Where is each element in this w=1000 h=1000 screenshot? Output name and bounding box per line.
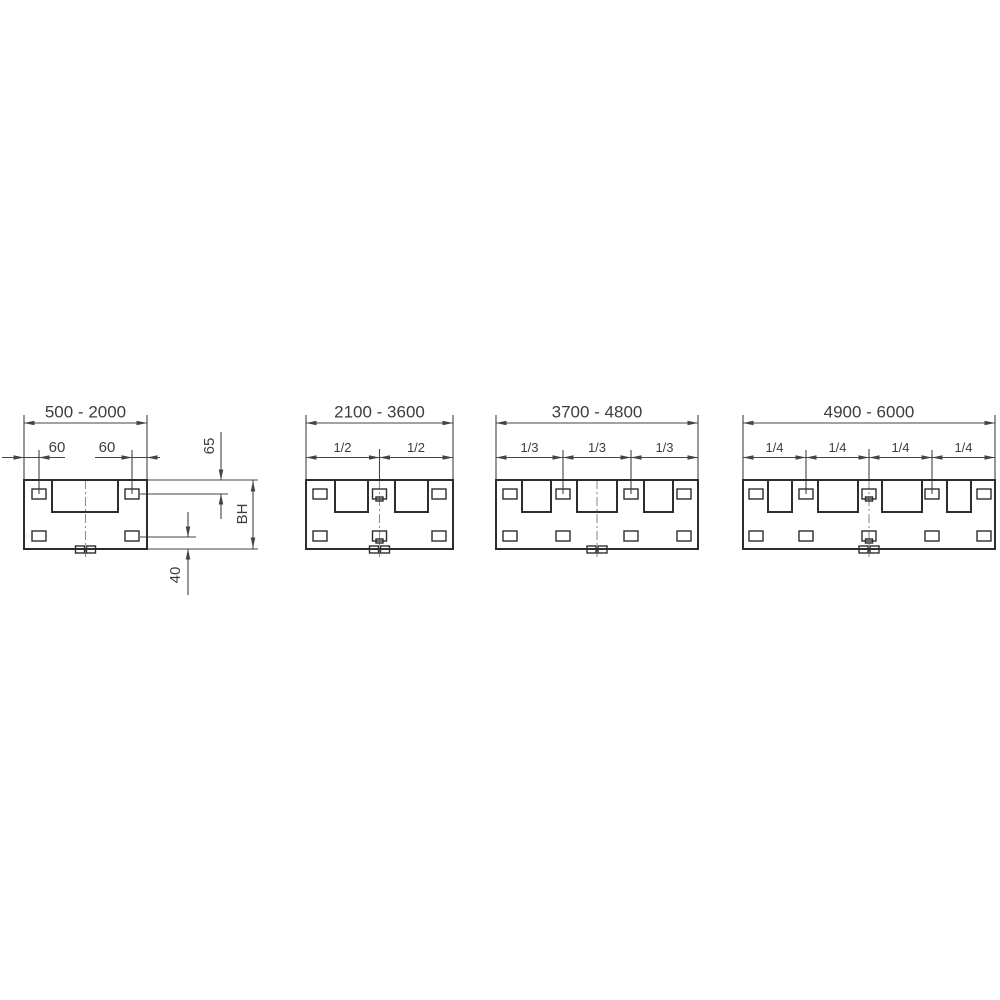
slot-bottom [556,531,570,541]
square-opening [947,480,971,512]
dimension-arrowhead [743,455,754,460]
dimension-arrowhead [859,455,870,460]
square-opening-center-left [818,480,858,512]
dim-label-bh: BH [234,504,251,525]
slot-top [432,489,446,499]
square-opening [335,480,368,512]
offset-label: 60 [49,439,66,456]
panel-500-2000: 500 - 2000606065BH40 [2,403,258,596]
dimension-arrowhead [688,421,699,426]
range-label: 2100 - 3600 [334,403,425,422]
dimension-arrowhead [922,455,933,460]
dimension-arrowhead [137,421,148,426]
fraction-label: 1/4 [891,440,909,455]
dimension-arrowhead [306,455,317,460]
dimension-arrowhead [24,421,35,426]
dimension-arrowhead [932,455,943,460]
slot-bottom [432,531,446,541]
panel-3700-4800: 3700 - 48001/31/31/3 [496,403,698,558]
fraction-label: 1/2 [407,440,425,455]
slot-bottom [313,531,327,541]
dimension-arrowhead [251,538,256,549]
square-opening [768,480,792,512]
fraction-label: 1/3 [520,440,538,455]
dimension-arrowhead [14,455,25,460]
slot-bottom-right [125,531,139,541]
slot-top [503,489,517,499]
square-opening [644,480,673,512]
slot-top [313,489,327,499]
dimension-arrowhead [563,455,574,460]
dimension-arrowhead [869,455,880,460]
dimension-arrowhead [219,470,224,481]
dimension-arrowhead [219,494,224,505]
dimension-arrowhead [688,455,699,460]
square-opening-center-right [882,480,922,512]
fraction-label: 1/4 [954,440,972,455]
dimension-arrowhead [743,421,754,426]
technical-drawing-page: 500 - 2000606065BH402100 - 36001/21/2370… [0,0,1000,1000]
slot-bottom [503,531,517,541]
range-label: 500 - 2000 [45,403,126,422]
range-label: 4900 - 6000 [824,403,915,422]
panel-2100-3600: 2100 - 36001/21/2 [306,403,453,558]
slot-bottom [749,531,763,541]
dimension-arrowhead [443,455,454,460]
dimension-arrowhead [985,421,996,426]
slot-bottom [624,531,638,541]
fraction-label: 1/3 [655,440,673,455]
dimension-arrowhead [186,527,191,538]
fraction-label: 1/4 [765,440,783,455]
dimension-arrowhead [496,421,507,426]
dimension-arrowhead [306,421,317,426]
dimension-arrowhead [186,549,191,560]
square-opening [395,480,428,512]
dimension-arrowhead [796,455,807,460]
dimension-arrowhead [985,455,996,460]
drawing-svg: 500 - 2000606065BH402100 - 36001/21/2370… [0,0,1000,1000]
slot-bottom [925,531,939,541]
dimension-arrowhead [496,455,507,460]
slot-top [977,489,991,499]
dim-label-65: 65 [201,438,218,455]
dimension-arrowhead [251,481,256,492]
dimension-arrowhead [806,455,817,460]
offset-label: 60 [99,439,116,456]
dim-label-40: 40 [167,567,184,584]
dimension-arrowhead [380,455,391,460]
dimension-arrowhead [553,455,564,460]
panel-4900-6000: 4900 - 60001/41/41/41/4 [743,403,995,558]
slot-top [677,489,691,499]
slot-bottom [677,531,691,541]
slot-top [749,489,763,499]
fraction-label: 1/2 [333,440,351,455]
square-opening [522,480,551,512]
slot-bottom [977,531,991,541]
fraction-label: 1/4 [828,440,846,455]
fraction-label: 1/3 [588,440,606,455]
dimension-arrowhead [631,455,642,460]
dimension-arrowhead [443,421,454,426]
dimension-arrowhead [122,455,133,460]
dimension-arrowhead [621,455,632,460]
range-label: 3700 - 4800 [552,403,643,422]
slot-bottom-left [32,531,46,541]
dimension-arrowhead [147,455,158,460]
dimension-arrowhead [369,455,380,460]
slot-bottom [799,531,813,541]
